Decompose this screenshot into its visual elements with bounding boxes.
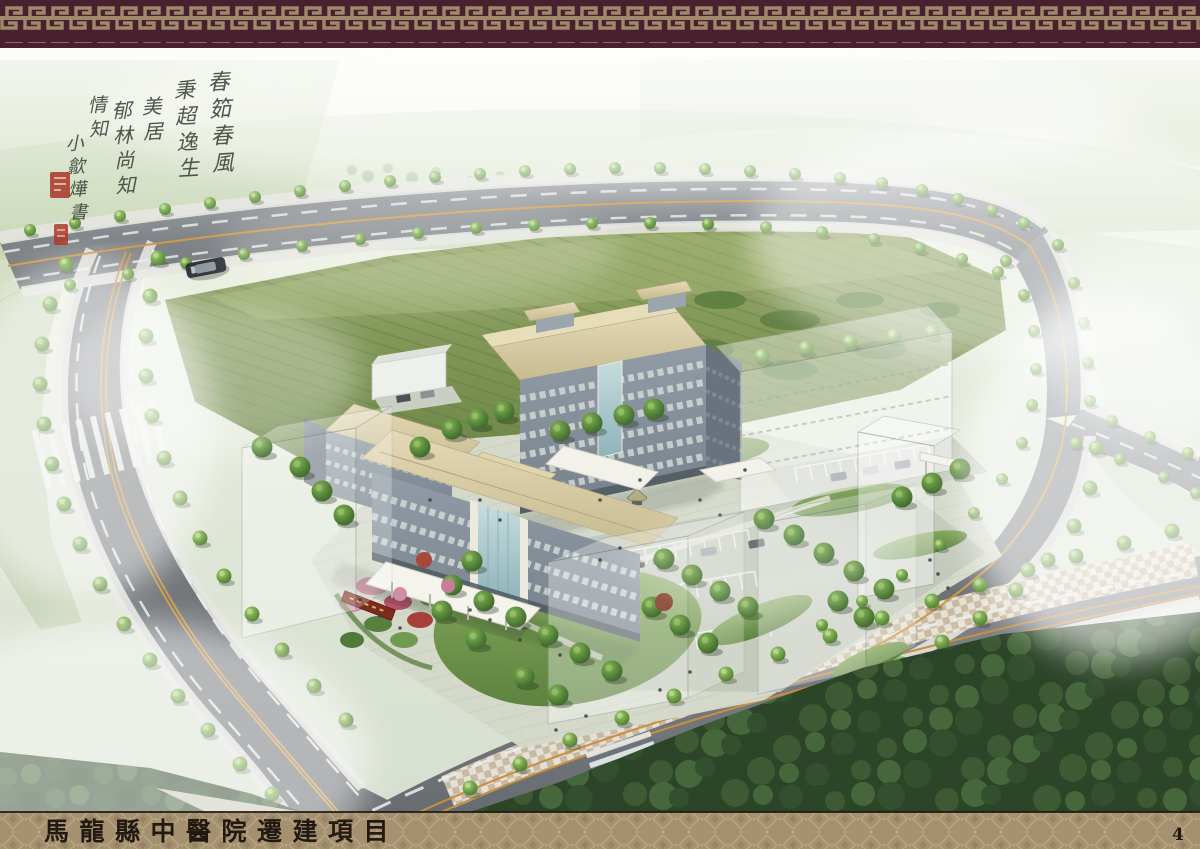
person — [584, 714, 588, 718]
forest-canopy — [935, 757, 955, 777]
forest-canopy — [825, 791, 845, 811]
forest-canopy — [1059, 732, 1083, 756]
forest-canopy — [565, 785, 593, 813]
forest-canopy — [929, 685, 949, 705]
forest-canopy — [851, 782, 875, 806]
forest-canopy — [669, 788, 689, 808]
title-bar: 馬龍縣中醫院遷建項目 4 — [0, 811, 1200, 849]
forest-canopy — [877, 782, 905, 810]
forest-canopy — [1007, 654, 1035, 682]
person — [498, 518, 502, 522]
forest-canopy — [1059, 710, 1079, 730]
forest-canopy — [825, 682, 853, 710]
forest-canopy — [1117, 738, 1137, 758]
forest-canopy — [1007, 632, 1031, 656]
forest-canopy — [877, 738, 897, 758]
forest-canopy — [623, 782, 647, 806]
forest-canopy — [779, 785, 803, 809]
forest-canopy — [747, 757, 775, 785]
forest-canopy — [903, 760, 931, 788]
person — [554, 728, 558, 732]
forest-canopy — [1007, 763, 1027, 783]
forest-canopy — [721, 735, 741, 755]
person — [618, 546, 622, 550]
forest-canopy — [1039, 682, 1063, 706]
person — [946, 586, 950, 590]
person — [658, 688, 662, 692]
forest-canopy — [987, 735, 1011, 759]
forest-canopy — [851, 760, 871, 780]
person — [358, 598, 362, 602]
forest-canopy — [1137, 788, 1157, 808]
forest-canopy — [1085, 679, 1105, 699]
forest-canopy — [1033, 763, 1057, 787]
forest-canopy — [987, 713, 1007, 733]
forest-canopy — [1143, 707, 1163, 727]
seal-stamp — [50, 172, 70, 198]
forest-canopy — [1163, 788, 1187, 812]
forest-canopy — [935, 788, 959, 812]
architectural-rendering: 春筎春風秉超逸生美居郁林尚知情知小歙燁書 馬龍縣中醫院遷建項目 4 — [0, 0, 1200, 849]
person — [398, 626, 402, 630]
forest-canopy — [929, 707, 953, 731]
forest-canopy — [805, 763, 829, 787]
forest-canopy — [981, 785, 1001, 805]
project-title: 馬龍縣中醫院遷建項目 — [44, 817, 399, 846]
forest-canopy — [1013, 682, 1033, 702]
page-number: 4 — [1172, 825, 1184, 845]
forest-canopy — [981, 654, 1005, 678]
forest-canopy — [1137, 679, 1165, 707]
forest-canopy — [773, 735, 801, 763]
forest-canopy — [929, 729, 957, 757]
person — [638, 478, 642, 482]
forest-canopy — [903, 729, 927, 753]
forest-canopy — [1111, 657, 1131, 677]
forest-canopy — [981, 676, 1009, 704]
forest-canopy — [773, 704, 797, 728]
forest-canopy — [721, 757, 745, 781]
forest-canopy — [831, 732, 855, 756]
fret-pattern — [0, 6, 1200, 43]
forest-canopy — [1065, 791, 1085, 811]
person — [488, 618, 492, 622]
person — [743, 468, 747, 472]
forest-canopy — [1117, 760, 1141, 784]
person — [378, 614, 382, 618]
person — [698, 498, 702, 502]
person — [478, 498, 482, 502]
forest-canopy — [961, 735, 981, 755]
forest-canopy — [1013, 704, 1037, 728]
forest-canopy — [597, 791, 617, 811]
seal-stamp — [54, 224, 68, 245]
forest-canopy — [1137, 657, 1161, 681]
person — [558, 653, 562, 657]
forest-canopy — [721, 779, 749, 807]
forest-canopy — [779, 763, 799, 783]
forest-canopy — [1111, 679, 1135, 703]
forest-canopy — [1169, 685, 1189, 705]
forest-canopy — [1091, 782, 1115, 806]
forest-canopy — [883, 679, 907, 703]
forest-canopy — [857, 710, 881, 734]
forest-canopy — [909, 788, 929, 808]
forest-canopy — [1039, 660, 1059, 680]
forest-canopy — [877, 760, 901, 784]
person — [468, 608, 472, 612]
person — [598, 498, 602, 502]
forest-canopy — [1033, 785, 1061, 813]
forest-canopy — [1085, 710, 1109, 734]
person — [936, 572, 940, 576]
person — [598, 558, 602, 562]
person — [688, 670, 692, 674]
forest-canopy — [1091, 760, 1111, 780]
forest-canopy — [909, 657, 933, 681]
forest-canopy — [747, 713, 767, 733]
forest-canopy — [955, 654, 975, 674]
forest-canopy — [539, 785, 563, 809]
forest-canopy — [955, 685, 979, 709]
forest-canopy — [1007, 785, 1031, 809]
forest-canopy — [695, 788, 719, 812]
forest-canopy — [1169, 707, 1193, 731]
forest-canopy — [805, 732, 825, 752]
forest-canopy — [695, 757, 715, 777]
scene: 春筎春風秉超逸生美居郁林尚知情知小歙燁書 — [0, 32, 1200, 849]
forest-canopy — [1111, 701, 1139, 729]
forest-canopy — [961, 757, 985, 781]
person — [518, 638, 522, 642]
forest-canopy — [955, 707, 983, 735]
forest-canopy — [1085, 732, 1113, 760]
person — [428, 498, 432, 502]
forest-canopy — [1163, 757, 1183, 777]
forest-canopy — [1059, 754, 1087, 782]
forest-canopy — [753, 785, 773, 805]
presentation-page: 春筎春風秉超逸生美居郁林尚知情知小歙燁書 馬龍縣中醫院遷建項目 4 — [0, 0, 1200, 849]
forest-canopy — [857, 679, 877, 699]
forest-canopy — [1143, 729, 1167, 753]
forest-canopy — [1163, 657, 1191, 685]
top-border — [0, 0, 1200, 48]
forest-canopy — [623, 760, 643, 780]
forest-canopy — [1033, 732, 1053, 752]
forest-canopy — [799, 704, 827, 732]
person — [928, 558, 932, 562]
forest-canopy — [747, 735, 771, 759]
forest-canopy — [831, 710, 851, 730]
forest-canopy — [903, 707, 923, 727]
forest-canopy — [649, 760, 673, 784]
